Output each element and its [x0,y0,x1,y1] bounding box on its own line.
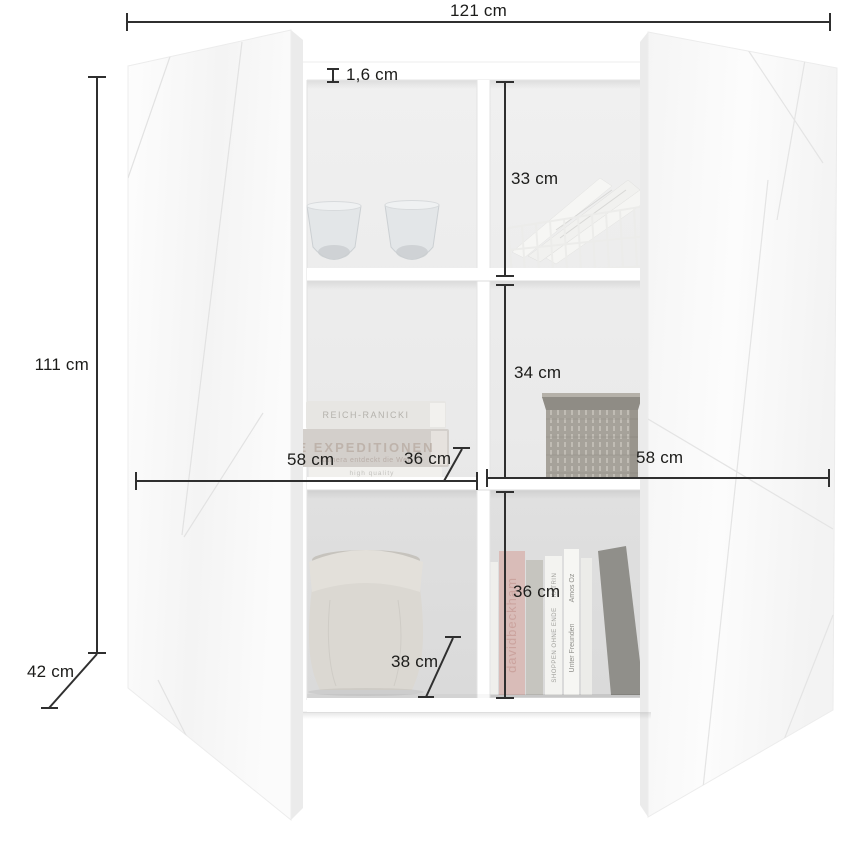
book-row: davidbeckham KATRIN SHOPPEN OHNE ENDE Am… [487,546,645,697]
dim-label-section-left-width: 58 cm [287,450,334,470]
dim-label-panel-thickness: 1,6 cm [346,65,398,85]
woven-basket [542,393,642,485]
dim-label-shelf-depth-bottom: 38 cm [391,652,438,672]
book-spine-text: Amos Oz [569,573,576,602]
dim-label-compartment-top: 33 cm [511,169,558,189]
book-spine-text: SHOPPEN OHNE ENDE [552,607,558,682]
book-spine-text: high quality [350,470,395,477]
paper-bag [308,550,424,696]
product-dimension-diagram: REICH-RANICKI E EXPEDITIONEN Kamera entd… [0,0,868,868]
book-spine-text: Unter Freunden [569,623,576,672]
cabinet-illustration: REICH-RANICKI E EXPEDITIONEN Kamera entd… [0,0,868,868]
right-door [640,32,837,817]
cabinet-shadow [303,712,651,719]
dim-label-total-height: 111 cm [33,355,89,375]
dim-label-total-depth: 42 cm [27,662,74,682]
left-door [128,30,303,820]
dim-label-compartment-middle: 34 cm [514,363,561,383]
dim-label-shelf-depth-middle: 36 cm [404,449,451,469]
dim-label-compartment-bottom: 36 cm [513,582,560,602]
dim-label-total-width: 121 cm [127,1,830,21]
dim-label-section-right-width: 58 cm [636,448,683,468]
book-spine-text: REICH-RANICKI [322,410,409,420]
